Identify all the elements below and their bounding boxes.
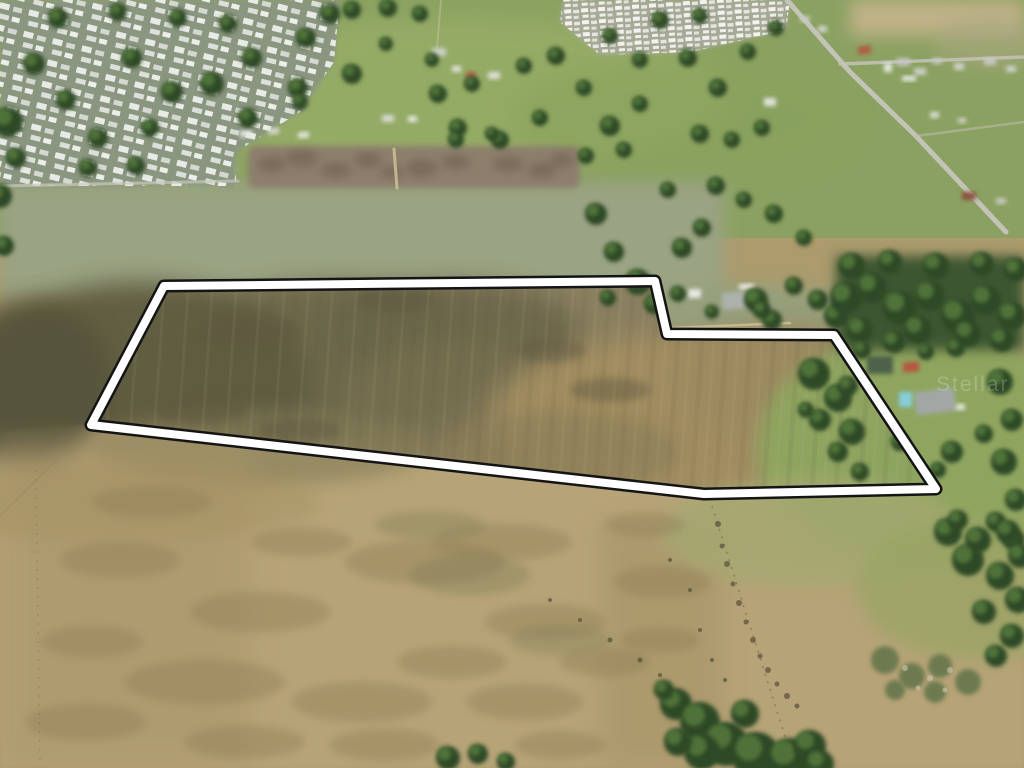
brush-speck: [638, 658, 643, 663]
tree-highlight: [766, 206, 776, 216]
brush-speck: [723, 678, 727, 682]
field-patch: [286, 149, 318, 167]
tree-highlight: [603, 29, 612, 38]
building: [930, 112, 939, 118]
tree: [871, 646, 899, 674]
tree-highlight: [548, 48, 558, 58]
building: [903, 361, 920, 373]
tree-highlight: [796, 732, 814, 750]
tree-highlight: [465, 77, 474, 86]
tree-highlight: [220, 16, 230, 26]
building: [764, 98, 776, 106]
building: [240, 129, 253, 137]
tree-highlight: [674, 239, 685, 250]
building: [956, 404, 965, 410]
tree-highlight: [808, 751, 823, 766]
brush-speck: [758, 654, 763, 659]
brush-speck: [658, 673, 662, 677]
tree-highlight: [298, 29, 309, 40]
tree-highlight: [601, 291, 610, 300]
tree-highlight: [128, 158, 138, 168]
tree: [955, 669, 981, 695]
field-patch: [42, 626, 142, 658]
tree-highlight: [671, 287, 680, 296]
tree-highlight: [974, 601, 987, 614]
tree-highlight: [50, 9, 61, 20]
tree-highlight: [293, 95, 302, 104]
field-patch: [620, 628, 700, 652]
tree-highlight: [859, 275, 876, 292]
tree-highlight: [737, 193, 746, 202]
tree-highlight: [606, 243, 617, 254]
building: [884, 63, 892, 72]
tree-highlight: [799, 403, 808, 412]
field-patch: [550, 153, 574, 167]
brush-speck: [548, 598, 552, 602]
tree-highlight: [854, 342, 864, 352]
tree-highlight: [602, 117, 613, 128]
tree-highlight: [993, 450, 1007, 464]
building: [1006, 66, 1016, 72]
building: [488, 72, 500, 79]
tree-highlight: [202, 73, 215, 86]
field-patch: [292, 682, 432, 722]
tree-highlight: [998, 521, 1011, 534]
field-patch: [354, 152, 382, 168]
tree-highlight: [832, 284, 850, 302]
brush-speck: [608, 638, 613, 643]
tree-highlight: [90, 129, 101, 140]
building: [914, 68, 926, 75]
tree-highlight: [1010, 545, 1023, 558]
tree-highlight: [633, 97, 642, 106]
tree-highlight: [944, 301, 963, 320]
building: [958, 118, 966, 123]
building: [954, 63, 964, 70]
tree-highlight: [733, 701, 748, 716]
tree-highlight: [885, 332, 897, 344]
tree-highlight: [852, 464, 862, 474]
tree-highlight: [1007, 588, 1021, 602]
tree-highlight: [950, 511, 961, 522]
tree-highlight: [1000, 303, 1015, 318]
tree-highlight: [240, 109, 251, 120]
tree-highlight: [943, 442, 955, 454]
watermark-text: Stellar: [936, 373, 1010, 396]
building: [382, 115, 394, 122]
tree-highlight: [617, 143, 626, 152]
aerial-photo: Stellar: [0, 0, 1024, 768]
field-patch: [510, 624, 610, 656]
tree-highlight: [992, 329, 1005, 342]
tree-highlight: [683, 704, 705, 726]
brush-speck: [775, 682, 780, 687]
tree-highlight: [652, 12, 662, 22]
tree-highlight: [80, 160, 90, 170]
tree-highlight: [1003, 410, 1015, 422]
field-patch: [614, 566, 710, 598]
field-patch: [190, 592, 330, 632]
tree-highlight: [661, 183, 670, 192]
building: [984, 58, 996, 65]
tree-highlight: [754, 302, 764, 312]
tree-highlight: [693, 9, 702, 18]
tree-highlight: [741, 45, 750, 54]
tree-highlight: [666, 729, 681, 744]
tree-highlight: [954, 546, 972, 564]
tree-highlight: [925, 254, 939, 268]
brush-speck: [902, 665, 908, 671]
tree-highlight: [710, 80, 720, 90]
building: [962, 192, 976, 200]
field-patch: [60, 542, 180, 578]
brush-speck: [947, 667, 953, 673]
tree-highlight: [8, 149, 19, 160]
tree-highlight: [917, 283, 934, 300]
tree: [928, 654, 952, 678]
tree-highlight: [972, 253, 985, 266]
aerial-photo-container: Stellar: [0, 0, 1024, 768]
tree-highlight: [517, 59, 526, 68]
tree-highlight: [25, 54, 37, 66]
building: [452, 66, 461, 72]
field-patch: [330, 729, 440, 761]
tree-highlight: [746, 289, 759, 302]
tree-highlight: [886, 293, 905, 312]
tree-highlight: [1002, 625, 1015, 638]
tree-highlight: [163, 82, 175, 94]
tree: [885, 680, 905, 700]
tree-highlight: [725, 133, 734, 142]
tree-highlight: [430, 86, 440, 96]
tree-highlight: [124, 49, 135, 60]
tree-highlight: [533, 111, 542, 120]
building: [688, 289, 701, 298]
tree-highlight: [708, 178, 718, 188]
tree-highlight: [322, 5, 333, 16]
tree-highlight: [344, 2, 354, 12]
tree-highlight: [244, 49, 255, 60]
brush-speck: [927, 675, 933, 681]
tree-highlight: [633, 53, 642, 62]
tree-highlight: [797, 231, 806, 240]
field-patch: [125, 660, 285, 704]
tree-highlight: [692, 126, 702, 136]
tree-highlight: [426, 54, 434, 62]
tree-highlight: [694, 220, 704, 230]
building: [268, 127, 280, 134]
tree-highlight: [957, 322, 971, 336]
field-patch: [92, 486, 212, 518]
tree-highlight: [988, 513, 999, 524]
building: [867, 356, 893, 374]
tree-highlight: [967, 528, 981, 542]
brush-speck: [698, 628, 702, 632]
building: [739, 284, 754, 290]
tree-highlight: [987, 646, 999, 658]
tree-highlight: [988, 563, 1003, 578]
brush-speck: [731, 582, 736, 587]
brush-speck: [750, 637, 756, 643]
field-patch: [397, 646, 507, 678]
field-patch: [258, 156, 286, 172]
field-patch: [493, 156, 523, 172]
tree-highlight: [577, 81, 586, 90]
field-patch: [467, 684, 583, 720]
brush-speck: [784, 693, 790, 699]
tree-highlight: [810, 291, 821, 302]
tree-highlight: [579, 149, 588, 158]
field-patch: [528, 162, 556, 178]
building: [298, 132, 309, 139]
building: [899, 392, 912, 407]
field-patch: [380, 166, 404, 178]
brush-speck: [710, 658, 714, 662]
tree-highlight: [380, 38, 388, 46]
tree-highlight: [736, 734, 762, 760]
tree-highlight: [498, 754, 508, 764]
brush-speck: [715, 521, 721, 527]
tree-highlight: [170, 10, 180, 20]
tree-highlight: [769, 21, 778, 30]
field-patch: [442, 154, 470, 170]
tree-highlight: [841, 254, 855, 268]
tree: [924, 681, 946, 703]
tree-highlight: [880, 251, 893, 264]
brush-speck: [688, 588, 692, 592]
tree-highlight: [290, 79, 301, 90]
brush-speck: [744, 620, 749, 625]
field-patch: [26, 704, 146, 740]
tree-highlight: [841, 420, 855, 434]
tree-highlight: [110, 4, 120, 14]
tree-highlight: [1006, 259, 1019, 272]
tree-highlight: [771, 740, 795, 764]
tree-highlight: [470, 745, 481, 756]
building: [996, 198, 1006, 204]
tree-highlight: [830, 443, 841, 454]
building: [932, 58, 942, 64]
tree-highlight: [931, 463, 940, 472]
field-patch: [375, 511, 485, 539]
tree-highlight: [413, 7, 422, 16]
field-patch: [515, 731, 605, 759]
tree-highlight: [919, 345, 928, 354]
tree-highlight: [1007, 490, 1019, 502]
brush-speck: [720, 544, 725, 549]
brush-speck: [943, 688, 948, 693]
brush-speck: [916, 686, 921, 691]
building: [818, 26, 827, 32]
brush-speck: [578, 618, 582, 622]
tree-highlight: [706, 306, 714, 314]
building: [408, 116, 417, 122]
tree-highlight: [755, 121, 764, 130]
tree-highlight: [976, 426, 986, 436]
tree-highlight: [840, 377, 851, 388]
tree-highlight: [656, 681, 667, 692]
tree-highlight: [344, 65, 355, 76]
brush-speck: [795, 704, 800, 709]
tree-highlight: [786, 278, 796, 288]
tree-highlight: [142, 120, 152, 130]
tree-highlight: [449, 133, 458, 142]
field-patch: [406, 159, 438, 177]
tree-highlight: [587, 204, 599, 216]
tree-highlight: [849, 318, 863, 332]
tree-highlight: [438, 747, 451, 760]
tree-highlight: [680, 50, 690, 60]
tree-highlight: [948, 340, 958, 350]
tree-highlight: [973, 287, 990, 304]
brush-speck: [668, 558, 672, 562]
brush-speck: [724, 561, 730, 567]
brush-speck: [736, 600, 742, 606]
field-patch: [410, 555, 530, 595]
brush-speck: [765, 667, 771, 673]
tree-highlight: [486, 128, 494, 136]
building: [896, 58, 910, 66]
tree-highlight: [58, 91, 69, 102]
building: [800, 16, 810, 22]
building: [902, 76, 916, 81]
tree-highlight: [380, 0, 390, 10]
field-patch: [252, 528, 352, 556]
tree-highlight: [800, 360, 818, 378]
tree-highlight: [906, 317, 921, 332]
field-patch: [185, 726, 305, 758]
field-patch: [605, 513, 685, 537]
field-patch: [321, 162, 351, 178]
tree-highlight: [450, 120, 460, 130]
